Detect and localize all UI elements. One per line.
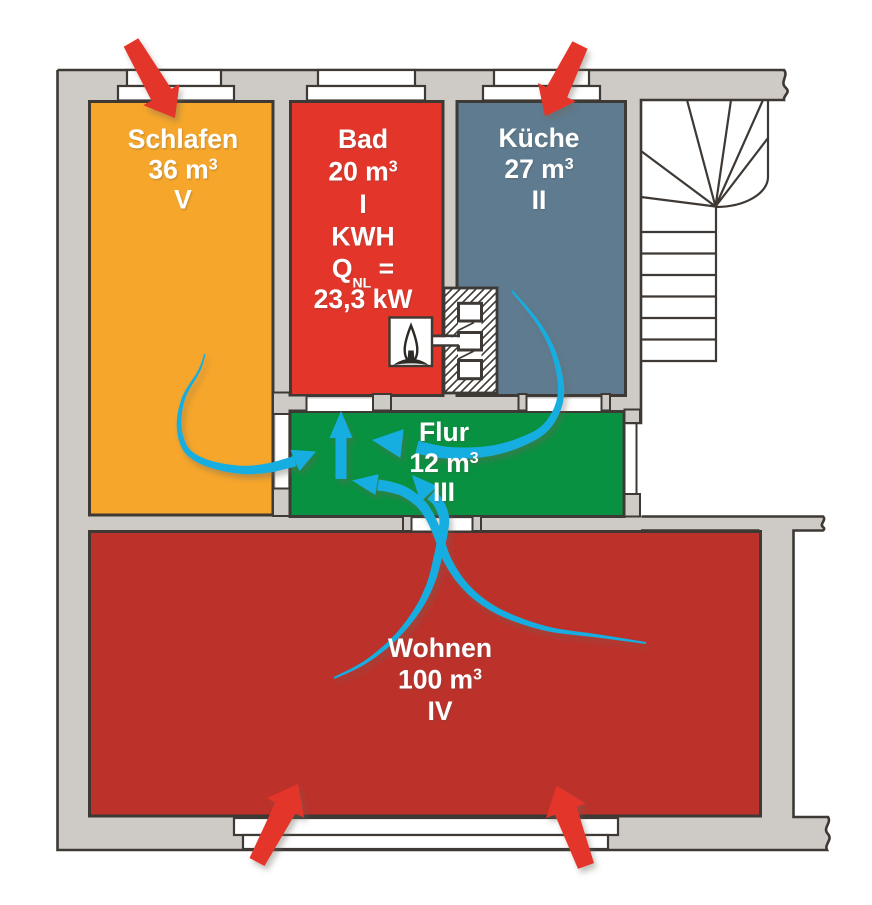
svg-text:20 m3: 20 m3 [328, 157, 397, 187]
svg-text:I: I [359, 189, 366, 219]
svg-text:IV: IV [427, 696, 452, 726]
svg-text:Schlafen: Schlafen [128, 124, 238, 154]
svg-text:27 m3: 27 m3 [504, 154, 573, 184]
svg-text:V: V [174, 185, 192, 215]
svg-text:100 m3: 100 m3 [398, 665, 482, 695]
svg-text:KWH: KWH [331, 222, 394, 252]
svg-text:12 m3: 12 m3 [409, 448, 478, 478]
svg-text:Bad: Bad [338, 124, 388, 154]
svg-text:II: II [532, 185, 547, 215]
svg-text:Küche: Küche [499, 123, 580, 153]
svg-text:Flur: Flur [419, 417, 469, 447]
svg-text:23,3 kW: 23,3 kW [314, 284, 413, 314]
svg-text:III: III [433, 477, 455, 507]
svg-text:36 m3: 36 m3 [148, 155, 217, 185]
svg-text:Wohnen: Wohnen [388, 633, 492, 663]
